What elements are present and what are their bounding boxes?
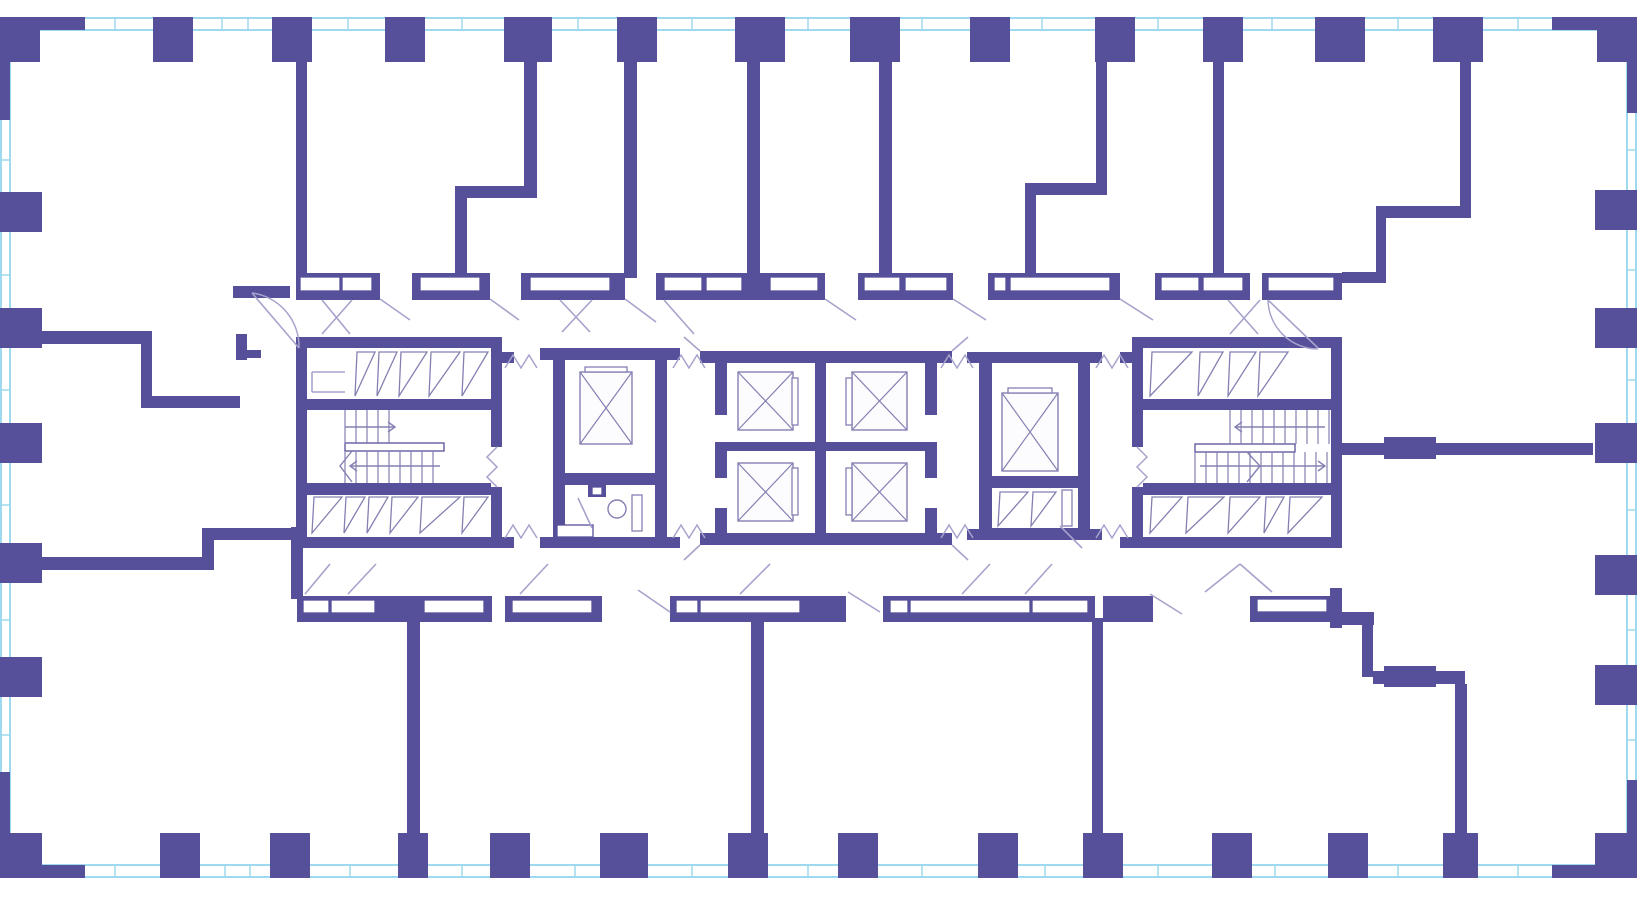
plumbing-fixtures [608, 500, 626, 518]
structural-walls [0, 17, 1637, 878]
floor-plan [0, 0, 1637, 900]
floor-plan-canvas [0, 0, 1637, 900]
stair-direction-arrows [340, 422, 1325, 482]
